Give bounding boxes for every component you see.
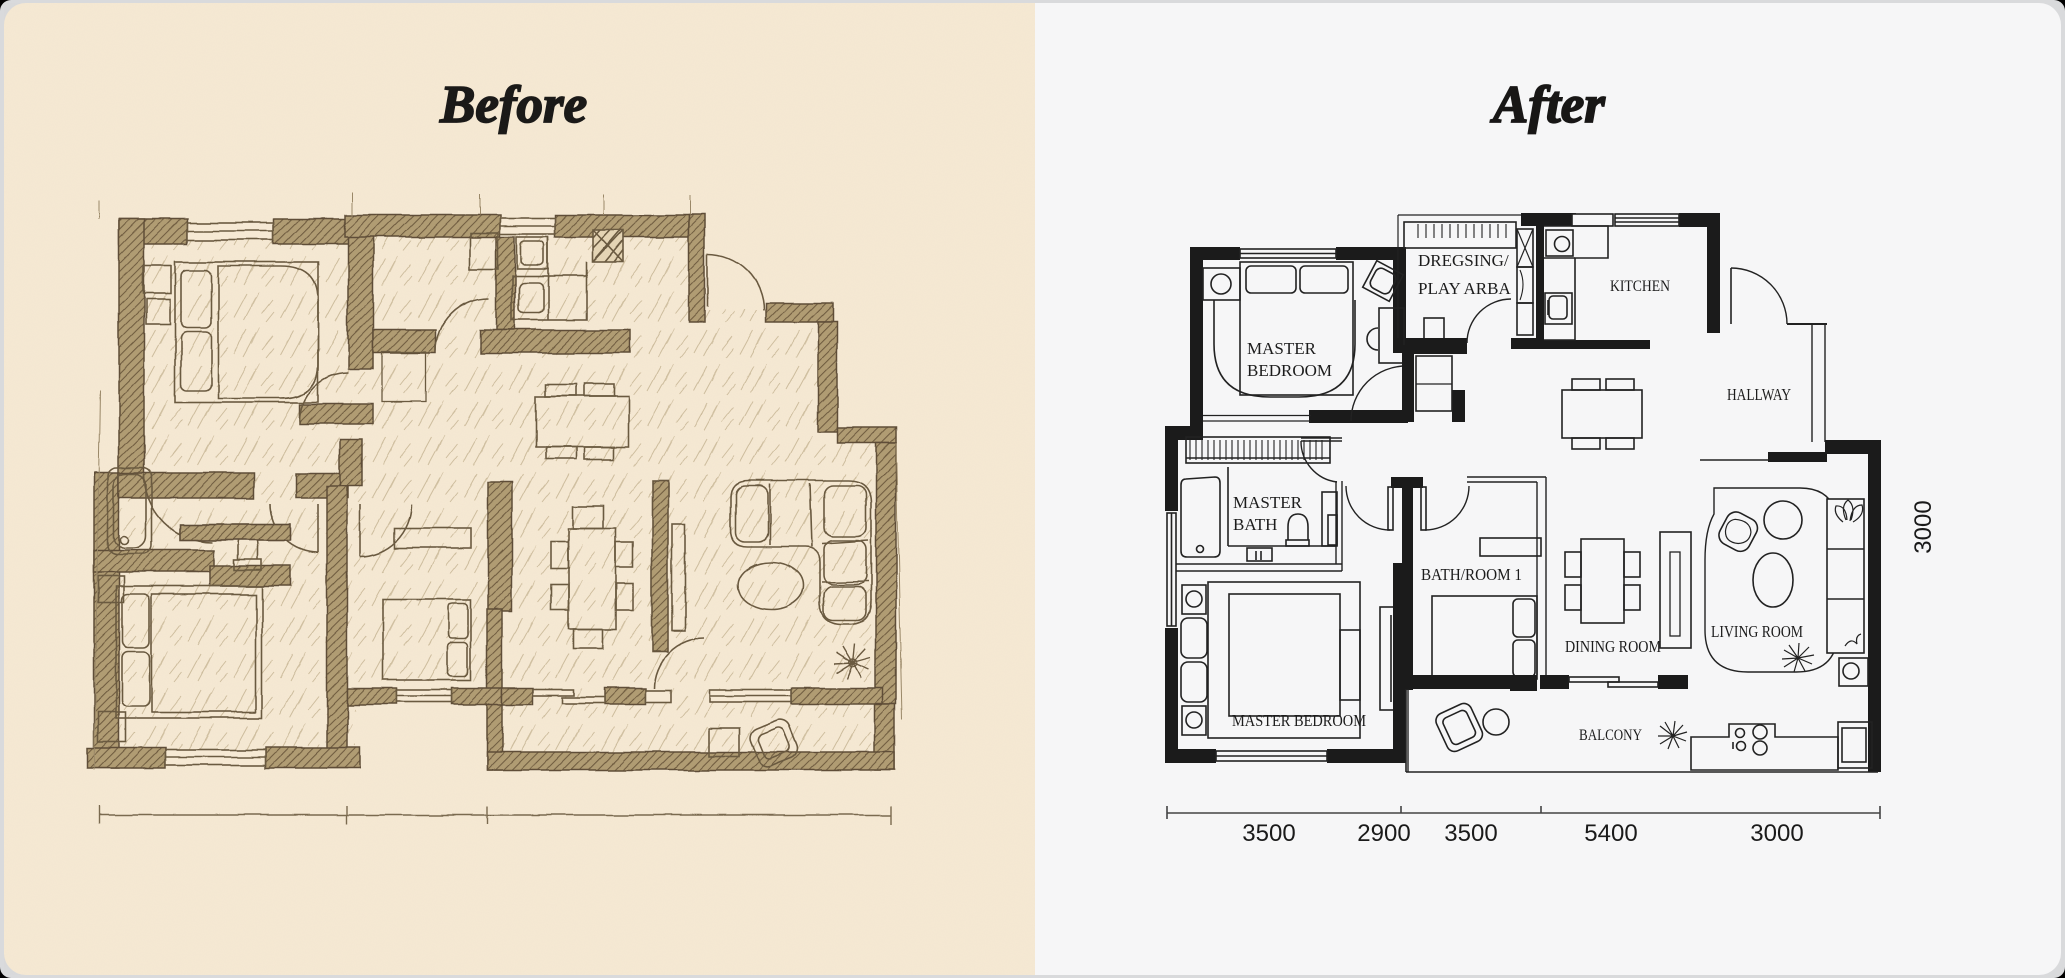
- svg-text:3000: 3000: [1750, 820, 1803, 847]
- svg-text:BATH/ROOM 1: BATH/ROOM 1: [1421, 565, 1522, 584]
- svg-text:2900: 2900: [1357, 820, 1410, 847]
- svg-text:MASTER: MASTER: [1233, 493, 1303, 512]
- svg-text:MASTER: MASTER: [1247, 339, 1317, 358]
- svg-text:BALCONY: BALCONY: [1579, 727, 1642, 744]
- svg-text:3000: 3000: [1910, 500, 1937, 553]
- svg-text:5400: 5400: [1584, 820, 1637, 847]
- svg-text:DINING ROOM: DINING ROOM: [1565, 637, 1661, 656]
- svg-text:LIVING ROOM: LIVING ROOM: [1711, 622, 1803, 641]
- svg-text:KITCHEN: KITCHEN: [1610, 278, 1670, 295]
- svg-text:BATH: BATH: [1233, 515, 1277, 534]
- svg-text:3500: 3500: [1242, 820, 1295, 847]
- svg-text:MASTER BEDROOM: MASTER BEDROOM: [1232, 711, 1366, 730]
- svg-text:HALLWAY: HALLWAY: [1727, 385, 1791, 404]
- svg-text:DREGSING/: DREGSING/: [1418, 251, 1509, 270]
- svg-text:3500: 3500: [1444, 820, 1497, 847]
- svg-text:BEDROOM: BEDROOM: [1247, 361, 1332, 380]
- svg-text:PLAY ARBA: PLAY ARBA: [1418, 279, 1511, 298]
